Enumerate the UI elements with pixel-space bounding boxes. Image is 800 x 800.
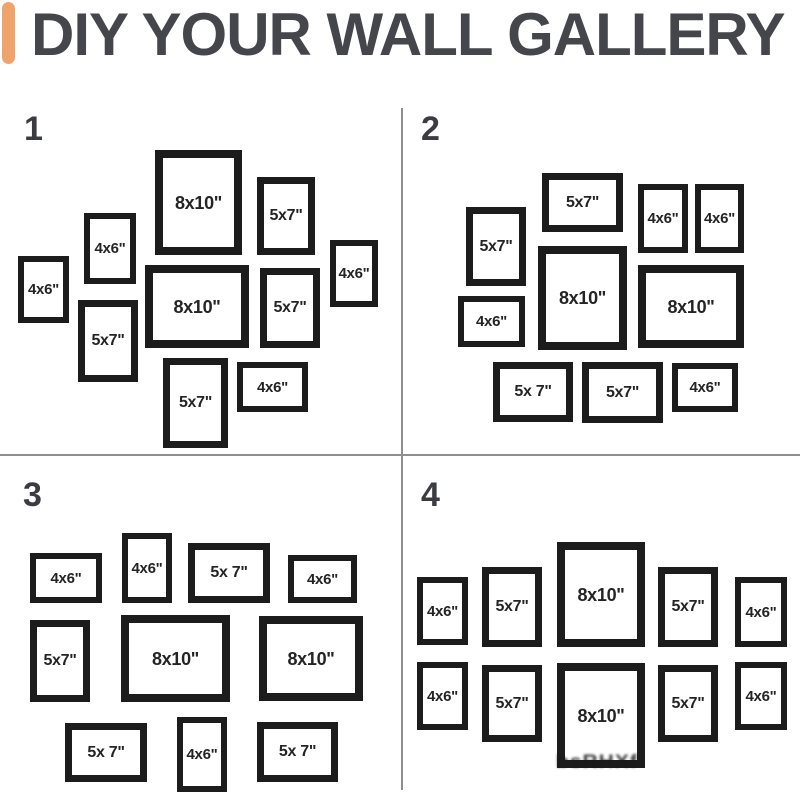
frame-size-label: 5x7" bbox=[671, 599, 704, 615]
frame-size-label: 5x7" bbox=[495, 696, 528, 712]
frame-size-label: 5x7" bbox=[91, 333, 124, 349]
frame-8x10: 8x10" bbox=[145, 265, 249, 348]
frame-size-label: 5x 7" bbox=[87, 745, 124, 761]
frame-5x7: 5x7" bbox=[30, 620, 90, 702]
frame-4x6: 4x6" bbox=[417, 662, 468, 730]
layout-number-2: 2 bbox=[421, 112, 440, 146]
frame-8x10: 8x10" bbox=[557, 542, 645, 647]
frame-size-label: 8x10" bbox=[577, 586, 624, 604]
frame-size-label: 4x6" bbox=[690, 380, 721, 395]
frame-size-label: 4x6" bbox=[746, 605, 777, 620]
layout-number-3: 3 bbox=[23, 478, 42, 512]
vertical-divider bbox=[401, 108, 403, 790]
frame-size-label: 5x 7" bbox=[210, 565, 247, 581]
frame-5x7: 5x 7" bbox=[188, 543, 270, 603]
frame-size-label: 5x7" bbox=[495, 599, 528, 615]
frame-size-label: 4x6" bbox=[132, 561, 163, 576]
frame-size-label: 5x7" bbox=[671, 696, 704, 712]
frame-size-label: 4x6" bbox=[28, 282, 59, 297]
frame-size-label: 4x6" bbox=[427, 689, 458, 704]
frame-size-label: 4x6" bbox=[476, 314, 507, 329]
frame-size-label: 4x6" bbox=[257, 380, 288, 395]
frame-4x6: 4x6" bbox=[237, 362, 308, 412]
frame-size-label: 5x7" bbox=[606, 385, 639, 401]
frame-size-label: 5x7" bbox=[179, 395, 212, 411]
frame-5x7: 5x7" bbox=[78, 300, 138, 382]
frame-8x10: 8x10" bbox=[155, 150, 242, 255]
frame-4x6: 4x6" bbox=[177, 717, 227, 792]
frame-4x6: 4x6" bbox=[18, 256, 69, 323]
frame-4x6: 4x6" bbox=[30, 553, 102, 603]
frame-size-label: 4x6" bbox=[187, 747, 218, 762]
poster: DIY YOUR WALL GALLERY 18x10"5x7"4x6"4x6"… bbox=[0, 0, 800, 800]
frame-size-label: 8x10" bbox=[577, 707, 624, 725]
frame-size-label: 5x 7" bbox=[514, 384, 551, 400]
frame-5x7: 5x 7" bbox=[257, 722, 338, 782]
header: DIY YOUR WALL GALLERY bbox=[0, 0, 800, 70]
frame-size-label: 4x6" bbox=[746, 689, 777, 704]
frame-4x6: 4x6" bbox=[458, 296, 525, 347]
layout-number-4: 4 bbox=[421, 478, 440, 512]
frame-5x7: 5x7" bbox=[163, 358, 228, 448]
frame-size-label: 4x6" bbox=[51, 571, 82, 586]
frame-size-label: 4x6" bbox=[339, 266, 370, 281]
frame-size-label: 5x7" bbox=[269, 208, 302, 224]
frame-5x7: 5x7" bbox=[482, 567, 542, 647]
frame-4x6: 4x6" bbox=[735, 662, 787, 730]
watermark: bsRHXf bbox=[556, 751, 638, 773]
frame-4x6: 4x6" bbox=[417, 577, 468, 645]
frame-size-label: 4x6" bbox=[427, 604, 458, 619]
frame-4x6: 4x6" bbox=[330, 240, 378, 307]
frame-4x6: 4x6" bbox=[735, 577, 787, 647]
page-title: DIY YOUR WALL GALLERY bbox=[31, 0, 785, 68]
frame-8x10: 8x10" bbox=[121, 615, 230, 702]
frame-5x7: 5x7" bbox=[542, 173, 623, 232]
frame-size-label: 8x10" bbox=[559, 289, 606, 307]
frame-5x7: 5x 7" bbox=[493, 362, 573, 422]
frame-size-label: 8x10" bbox=[667, 298, 714, 316]
layout-number-1: 1 bbox=[24, 112, 43, 146]
frame-4x6: 4x6" bbox=[672, 363, 738, 412]
frame-4x6: 4x6" bbox=[288, 555, 357, 603]
frame-8x10: 8x10" bbox=[538, 246, 627, 350]
frame-4x6: 4x6" bbox=[695, 184, 744, 253]
frame-size-label: 8x10" bbox=[173, 298, 220, 316]
frame-4x6: 4x6" bbox=[638, 184, 688, 253]
frame-size-label: 8x10" bbox=[152, 650, 199, 668]
frame-size-label: 5x 7" bbox=[279, 744, 316, 760]
frame-5x7: 5x7" bbox=[260, 268, 320, 348]
frame-size-label: 5x7" bbox=[566, 195, 599, 211]
frame-8x10: 8x10" bbox=[638, 265, 744, 348]
horizontal-divider bbox=[0, 454, 800, 456]
frame-size-label: 8x10" bbox=[287, 650, 334, 668]
frame-size-label: 4x6" bbox=[307, 572, 338, 587]
accent-bar bbox=[2, 2, 15, 64]
frame-size-label: 4x6" bbox=[95, 241, 126, 256]
frame-5x7: 5x7" bbox=[658, 567, 718, 647]
frame-4x6: 4x6" bbox=[122, 533, 172, 603]
frame-size-label: 8x10" bbox=[175, 194, 222, 212]
frame-size-label: 5x7" bbox=[43, 653, 76, 669]
frame-5x7: 5x7" bbox=[582, 362, 663, 423]
frame-5x7: 5x7" bbox=[466, 207, 526, 286]
frame-5x7: 5x7" bbox=[482, 665, 542, 742]
frame-size-label: 5x7" bbox=[479, 239, 512, 255]
frame-size-label: 4x6" bbox=[704, 211, 735, 226]
frame-5x7: 5x7" bbox=[257, 177, 315, 255]
frame-size-label: 4x6" bbox=[648, 211, 679, 226]
frame-5x7: 5x7" bbox=[658, 665, 718, 742]
frame-5x7: 5x 7" bbox=[65, 723, 147, 782]
frame-size-label: 5x7" bbox=[273, 300, 306, 316]
frame-8x10: 8x10" bbox=[259, 616, 363, 701]
frame-4x6: 4x6" bbox=[84, 213, 136, 284]
